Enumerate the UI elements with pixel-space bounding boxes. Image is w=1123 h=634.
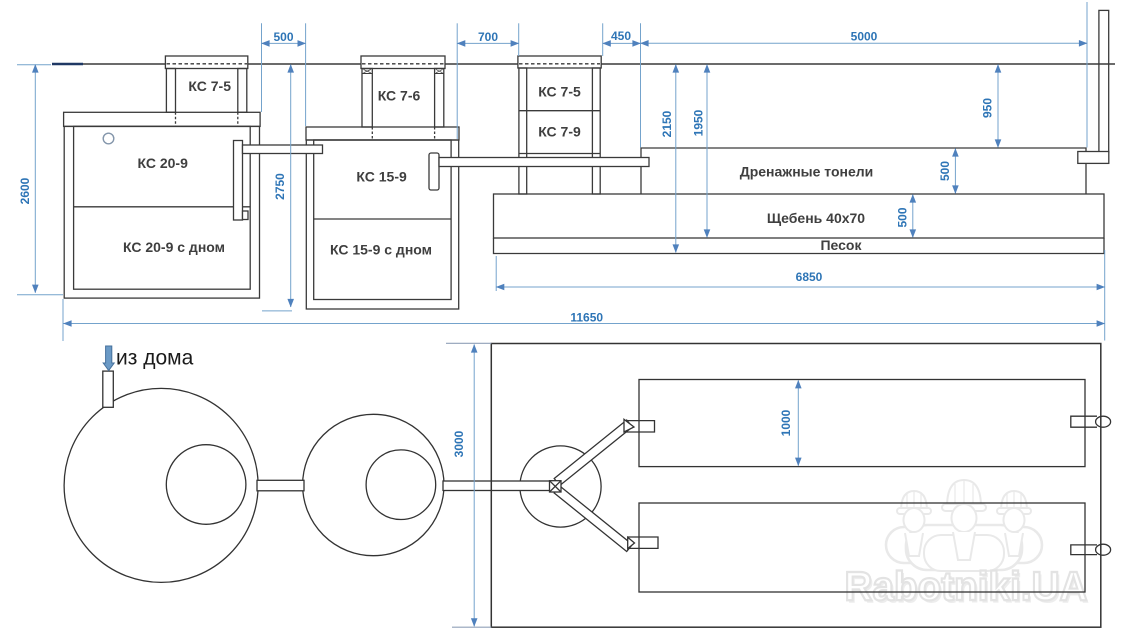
- svg-text:3000: 3000: [452, 430, 466, 457]
- svg-text:1950: 1950: [692, 109, 706, 136]
- svg-text:6850: 6850: [796, 270, 823, 284]
- svg-text:Дренажные тонели: Дренажные тонели: [740, 164, 874, 180]
- svg-text:950: 950: [981, 98, 995, 118]
- svg-text:Щебень 40х70: Щебень 40х70: [767, 210, 865, 226]
- svg-text:Rabotniki.UA: Rabotniki.UA: [845, 563, 1088, 609]
- svg-text:500: 500: [938, 161, 952, 181]
- svg-text:КС 15-9 с дном: КС 15-9 с дном: [330, 242, 432, 258]
- svg-text:700: 700: [478, 30, 498, 44]
- svg-text:2600: 2600: [18, 177, 32, 204]
- svg-text:2750: 2750: [273, 173, 287, 200]
- svg-text:500: 500: [273, 30, 293, 44]
- svg-text:КС 7-5: КС 7-5: [188, 78, 231, 94]
- svg-text:1000: 1000: [779, 409, 793, 436]
- svg-text:КС 7-9: КС 7-9: [538, 124, 581, 140]
- svg-text:КС 15-9: КС 15-9: [356, 169, 407, 185]
- svg-text:500: 500: [896, 207, 910, 227]
- svg-text:КС 20-9: КС 20-9: [138, 155, 189, 171]
- svg-text:КС 20-9 с дном: КС 20-9 с дном: [123, 239, 225, 255]
- svg-text:из дома: из дома: [116, 347, 194, 370]
- svg-text:5000: 5000: [851, 30, 878, 44]
- svg-text:КС 7-6: КС 7-6: [378, 88, 421, 104]
- svg-text:Песок: Песок: [820, 237, 862, 253]
- svg-text:450: 450: [611, 29, 631, 43]
- svg-text:КС 7-5: КС 7-5: [538, 84, 581, 100]
- svg-text:2150: 2150: [660, 110, 674, 137]
- svg-text:11650: 11650: [570, 311, 603, 325]
